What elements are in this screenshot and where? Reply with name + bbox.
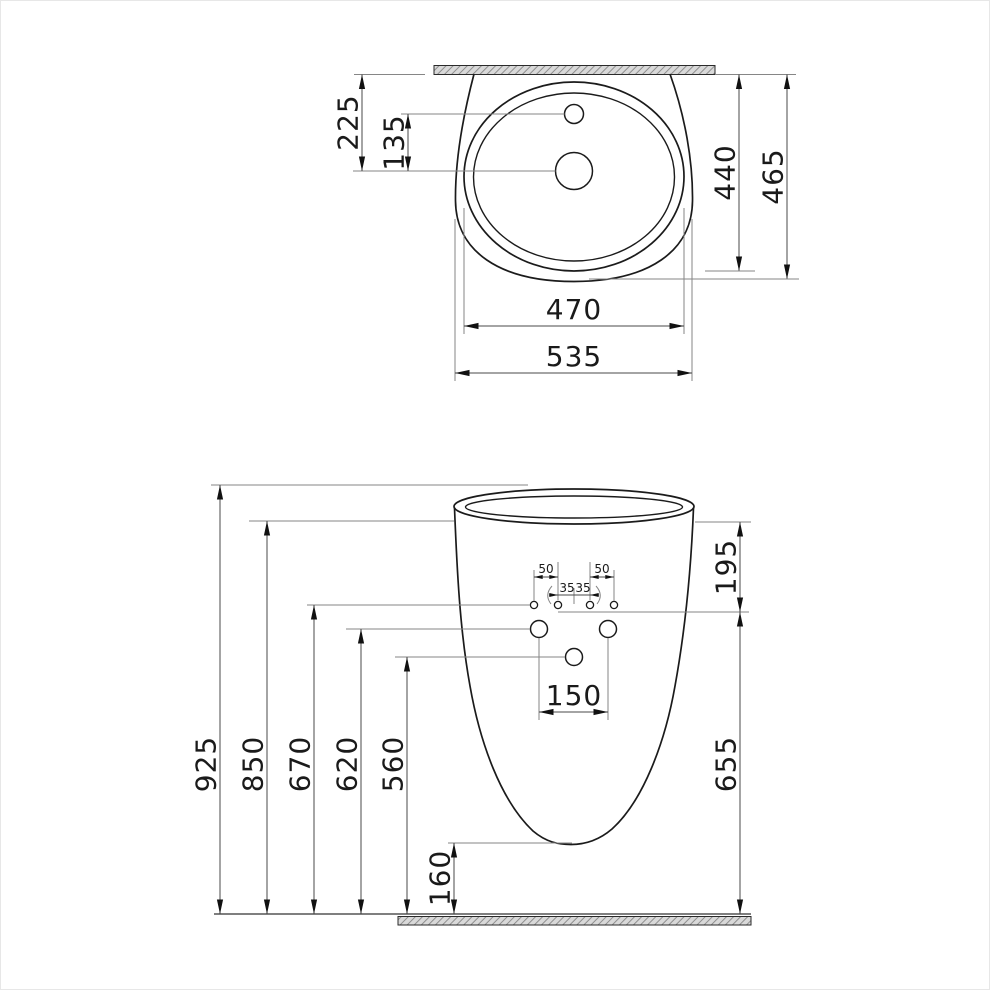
dim-label-225: 225 <box>332 94 365 150</box>
drain-hole <box>556 153 593 190</box>
side-hole-left <box>531 621 548 638</box>
center-hole <box>566 649 583 666</box>
dim-label-560: 560 <box>377 736 410 792</box>
faucet-hole <box>565 105 584 124</box>
wall-section-hatch <box>434 66 715 75</box>
top-opening-outer-rim <box>454 489 694 524</box>
dim-label-35-right: 35 <box>575 581 590 595</box>
top-view: 225 135 440 465 470 535 <box>332 66 800 382</box>
dim-label-35-left: 35 <box>559 581 574 595</box>
fixing-hole-2 <box>554 601 561 608</box>
dim-label-50-left: 50 <box>538 562 553 576</box>
dim-label-850: 850 <box>237 736 270 792</box>
drawing-canvas: 225 135 440 465 470 535 <box>0 0 990 990</box>
fixing-hole-1 <box>530 601 537 608</box>
dim-label-195: 195 <box>710 539 743 595</box>
floor-hatch <box>398 917 751 926</box>
fixing-hole-4 <box>610 601 617 608</box>
dim-label-150: 150 <box>546 679 602 712</box>
dim-label-440: 440 <box>709 144 742 200</box>
front-view: 50 50 35 35 150 925 850 670 620 560 160 … <box>190 485 752 925</box>
dim-label-535: 535 <box>546 340 602 373</box>
washbasin-technical-drawing: 225 135 440 465 470 535 <box>1 1 990 991</box>
dim-label-670: 670 <box>284 736 317 792</box>
dim-label-160: 160 <box>424 850 457 906</box>
dim-label-925: 925 <box>190 736 223 792</box>
pedestal-body-outline <box>455 508 694 845</box>
dim-label-620: 620 <box>331 736 364 792</box>
dim-label-470: 470 <box>546 293 602 326</box>
dim-label-135: 135 <box>378 114 411 170</box>
top-opening-inner-rim <box>466 496 683 518</box>
dim-label-655: 655 <box>710 736 743 792</box>
side-hole-right <box>600 621 617 638</box>
dim-label-50-right: 50 <box>594 562 609 576</box>
dim-label-465: 465 <box>757 148 790 204</box>
fixing-hole-3 <box>586 601 593 608</box>
